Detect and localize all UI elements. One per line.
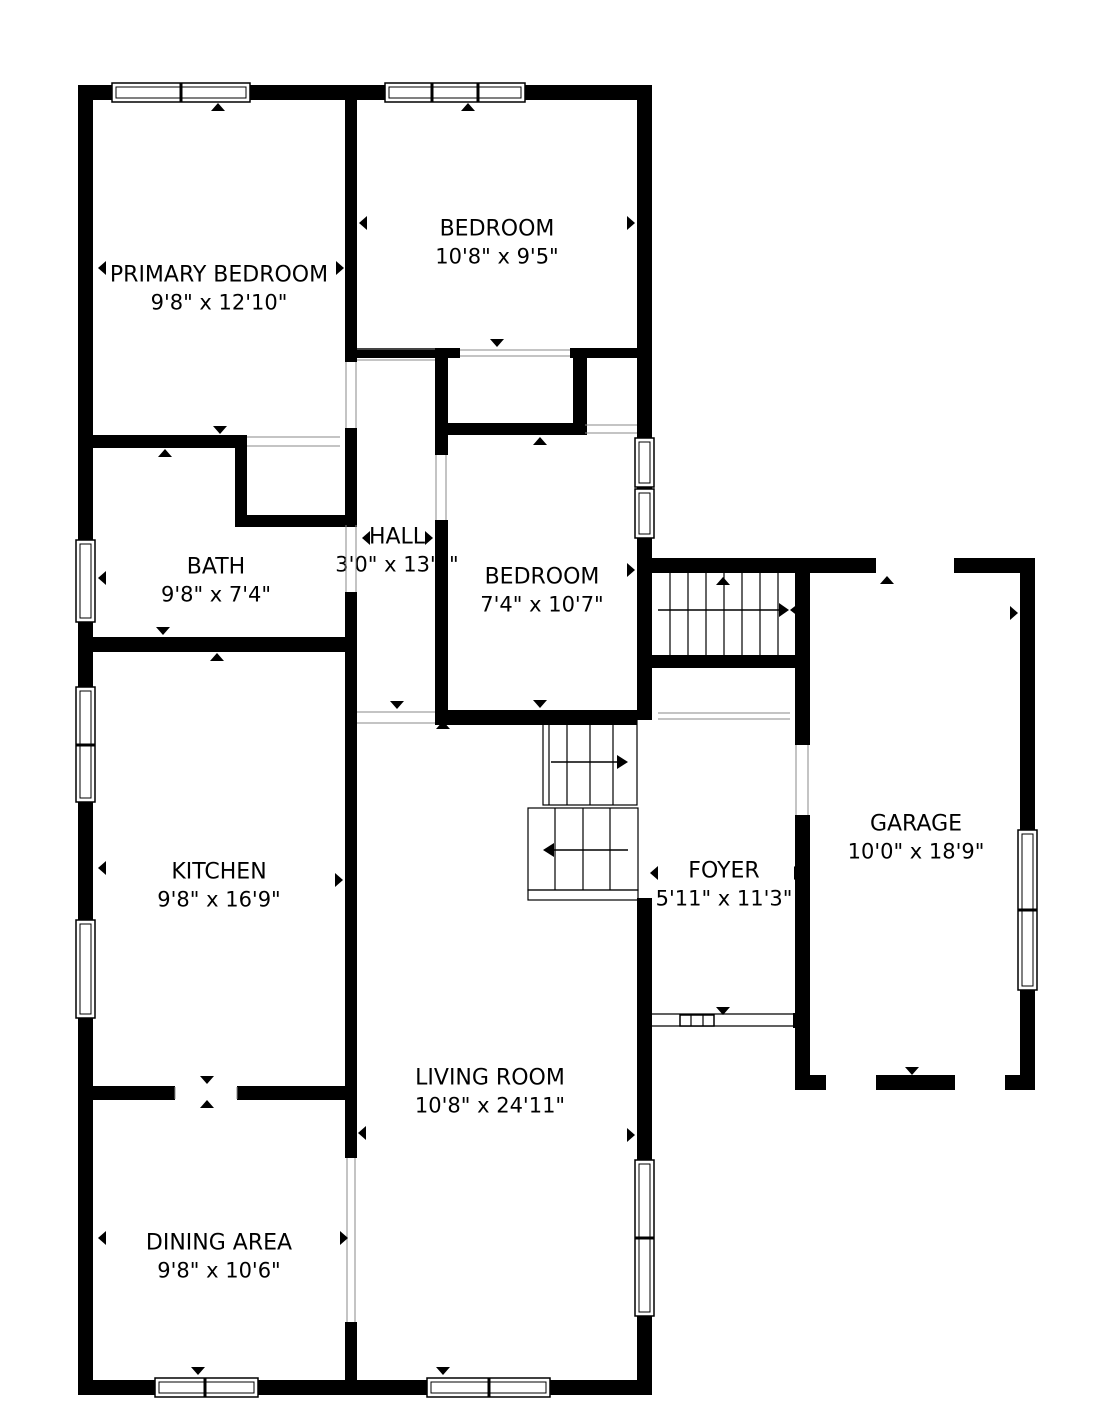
dimension-arrow xyxy=(461,103,475,111)
dimension-arrow xyxy=(335,873,343,887)
window xyxy=(76,540,95,622)
window xyxy=(385,83,525,102)
interior-walls xyxy=(78,85,1035,1395)
dimension-arrow xyxy=(211,103,225,111)
wall-segment xyxy=(637,573,652,720)
wall-segment xyxy=(637,898,652,1028)
stair-direction-arrow xyxy=(543,843,554,857)
dimension-arrow xyxy=(210,653,224,661)
window xyxy=(1018,830,1037,990)
exterior-walls xyxy=(78,85,652,1395)
wall-segment xyxy=(345,1322,357,1395)
wall-segment xyxy=(793,1013,810,1028)
windows xyxy=(76,83,1037,1397)
dimension-arrow xyxy=(627,1128,635,1142)
window xyxy=(427,1378,550,1397)
window xyxy=(635,438,654,487)
wall-segment xyxy=(435,520,448,712)
wall-segment xyxy=(345,428,357,525)
dimension-arrow xyxy=(1010,606,1018,620)
wall-segment xyxy=(78,1086,175,1100)
dimension-arrow xyxy=(200,1076,214,1084)
dimension-arrow xyxy=(156,627,170,635)
dimension-arrow xyxy=(436,1367,450,1375)
wall-segment xyxy=(345,592,357,1158)
dimension-arrows xyxy=(98,103,1018,1375)
staircase-upper-flight xyxy=(543,720,637,805)
dimension-arrow xyxy=(650,866,658,880)
stair-direction-arrow xyxy=(617,755,628,769)
wall-segment xyxy=(795,815,810,1090)
window xyxy=(76,920,95,1018)
window xyxy=(635,1160,654,1316)
dimension-arrow xyxy=(336,261,344,275)
dimension-arrow xyxy=(390,701,404,709)
stair-direction-arrow xyxy=(779,603,789,617)
wall-segment xyxy=(435,710,637,725)
dimension-arrow xyxy=(213,426,227,434)
dimension-arrow xyxy=(627,563,635,577)
dimension-arrow xyxy=(98,571,106,585)
dimension-arrow xyxy=(533,700,547,708)
dimension-arrow xyxy=(359,216,367,230)
wall-segment xyxy=(652,558,876,573)
basement-stairs xyxy=(658,568,799,655)
dimension-arrow xyxy=(716,577,730,585)
wall-segment xyxy=(235,515,357,527)
dimension-arrow xyxy=(490,339,504,347)
wall-segment xyxy=(652,655,795,668)
dimension-arrow xyxy=(191,1367,205,1375)
window xyxy=(635,489,654,538)
dimension-arrow xyxy=(905,1067,919,1075)
dimension-arrow xyxy=(158,449,172,457)
front-door-leaf xyxy=(680,1015,714,1026)
dimension-arrow xyxy=(98,861,106,875)
staircase-lower-flight xyxy=(528,808,638,900)
dimension-arrow xyxy=(880,576,894,584)
wall-segment xyxy=(78,435,247,448)
wall-segment xyxy=(573,348,587,435)
dimension-arrow xyxy=(533,437,547,445)
floor-plan-drawing xyxy=(0,0,1112,1410)
dimension-arrow xyxy=(200,1100,214,1108)
window xyxy=(155,1378,258,1397)
stair-direction-arrow xyxy=(790,603,799,617)
wall-segment xyxy=(1020,558,1035,830)
wall-segment xyxy=(237,1086,345,1100)
dimension-arrow xyxy=(425,531,433,545)
dimension-arrow xyxy=(627,216,635,230)
front-door xyxy=(648,1014,793,1026)
dimension-arrow xyxy=(362,531,370,545)
window xyxy=(76,687,95,802)
floor-plan: PRIMARY BEDROOM 9'8" x 12'10" BEDROOM 10… xyxy=(0,0,1112,1410)
wall-segment xyxy=(435,435,448,455)
wall-segment xyxy=(1005,1075,1035,1090)
dimension-arrow xyxy=(358,1126,366,1140)
window xyxy=(112,83,250,102)
wall-segment xyxy=(876,1075,955,1090)
wall-segment xyxy=(78,637,357,652)
wall-segment xyxy=(345,85,357,362)
dimension-arrow xyxy=(98,1231,106,1245)
wall-segment xyxy=(435,423,585,435)
wall-openings xyxy=(175,349,808,1322)
dimension-arrow xyxy=(98,261,106,275)
wall-segment xyxy=(795,558,810,745)
